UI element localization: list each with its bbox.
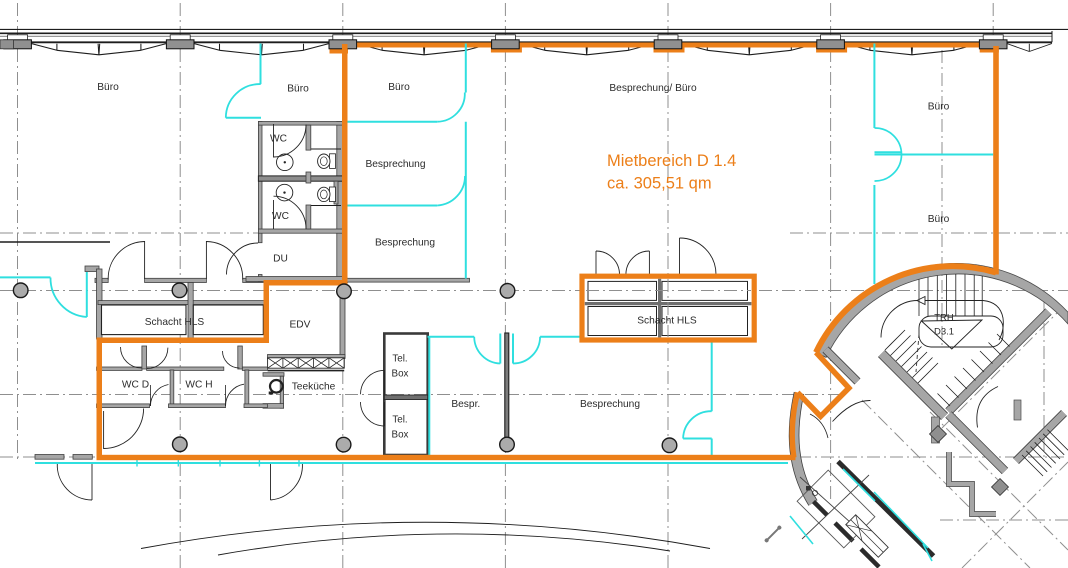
svg-text:Tel.: Tel. bbox=[392, 415, 407, 426]
svg-text:Teeküche: Teeküche bbox=[292, 382, 336, 393]
svg-text:WC D: WC D bbox=[122, 380, 149, 391]
svg-text:WC: WC bbox=[270, 134, 287, 145]
svg-text:Büro: Büro bbox=[928, 102, 950, 113]
svg-text:Schacht HLS: Schacht HLS bbox=[637, 316, 697, 327]
svg-text:DU: DU bbox=[273, 254, 288, 265]
svg-text:Büro: Büro bbox=[388, 82, 410, 93]
svg-text:Büro: Büro bbox=[928, 214, 950, 225]
svg-text:Box: Box bbox=[392, 430, 409, 441]
svg-text:Büro: Büro bbox=[287, 84, 309, 95]
svg-text:Besprechung: Besprechung bbox=[365, 159, 425, 170]
svg-text:Mietbereich D 1.4: Mietbereich D 1.4 bbox=[607, 152, 736, 170]
svg-text:Büro: Büro bbox=[97, 82, 119, 93]
svg-text:ca. 305,51 qm: ca. 305,51 qm bbox=[607, 175, 712, 193]
svg-text:Besprechung: Besprechung bbox=[580, 399, 640, 410]
svg-text:WC H: WC H bbox=[185, 380, 212, 391]
svg-text:EDV: EDV bbox=[290, 320, 311, 331]
svg-text:WC: WC bbox=[272, 211, 289, 222]
svg-text:Schacht HLS: Schacht HLS bbox=[145, 317, 205, 328]
svg-text:Besprechung/ Büro: Besprechung/ Büro bbox=[609, 83, 697, 94]
svg-text:Besprechung: Besprechung bbox=[375, 238, 435, 249]
svg-text:Box: Box bbox=[392, 369, 409, 380]
svg-text:TRH: TRH bbox=[934, 313, 954, 324]
svg-text:Tel.: Tel. bbox=[392, 354, 407, 365]
svg-text:D3.1: D3.1 bbox=[934, 327, 954, 338]
svg-text:Bespr.: Bespr. bbox=[451, 399, 480, 410]
